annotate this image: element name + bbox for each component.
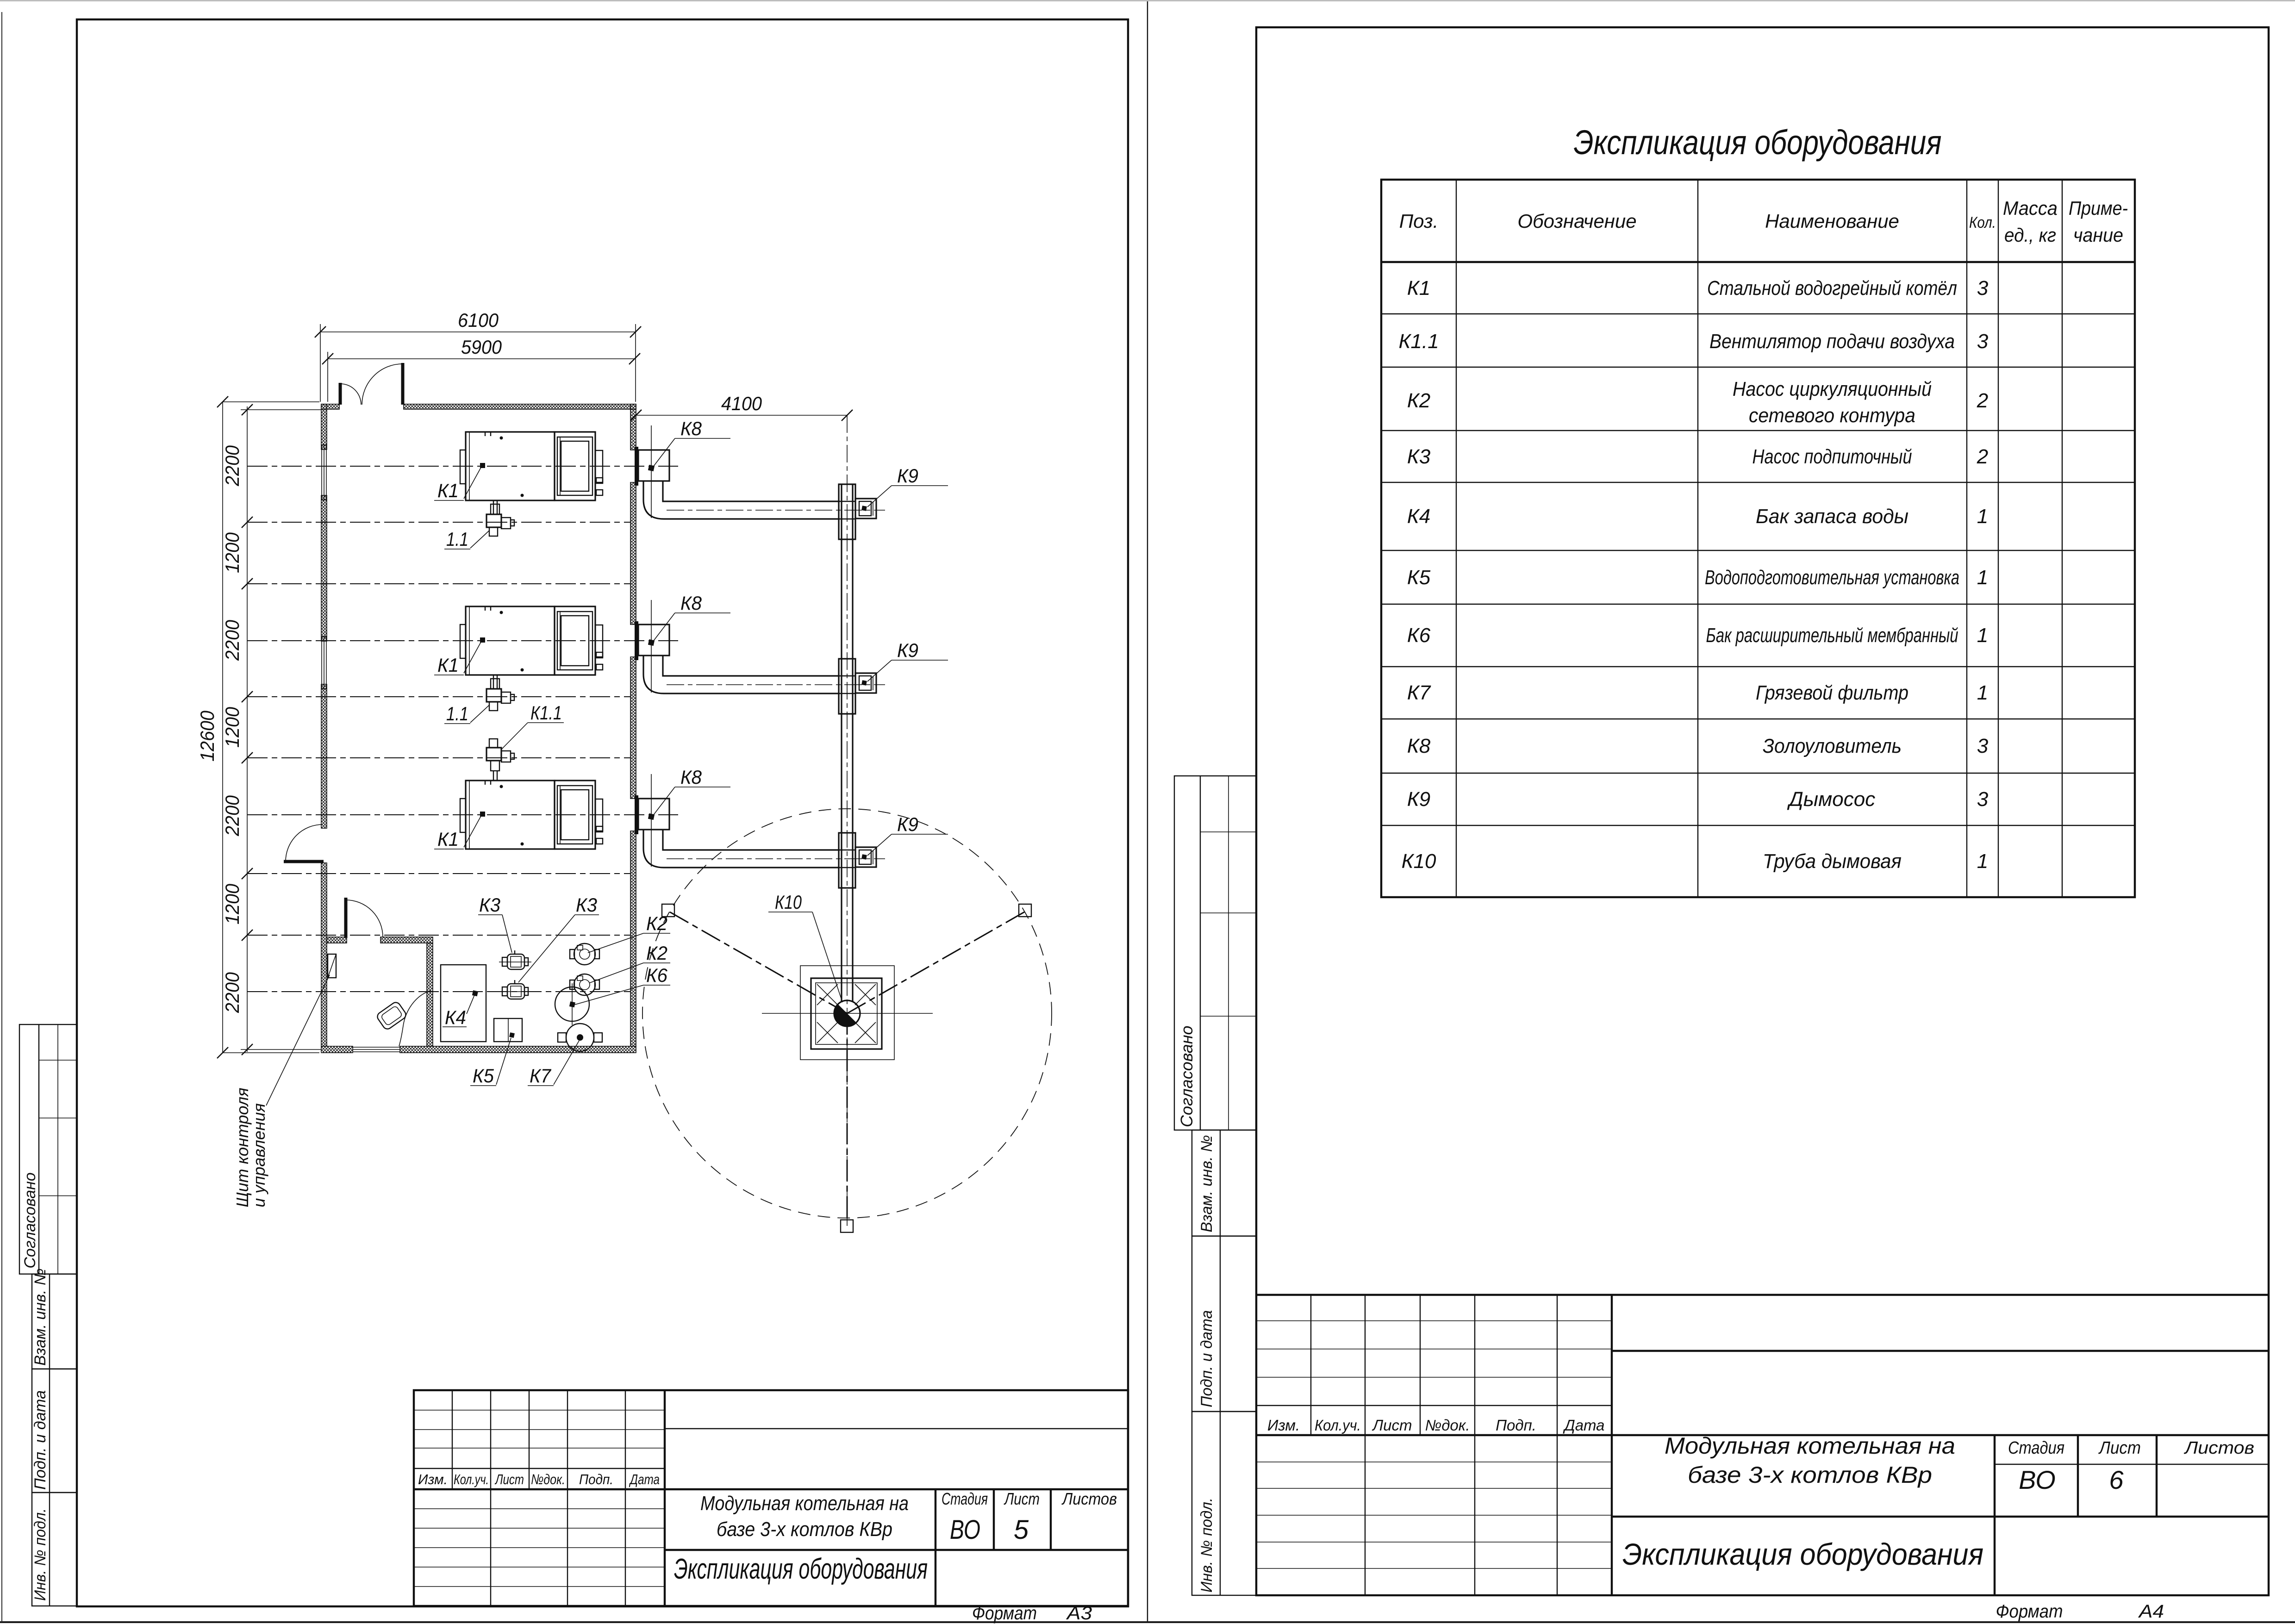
svg-text:Золоуловитель: Золоуловитель [1763, 735, 1902, 757]
svg-text:Насос подпиточный: Насос подпиточный [1752, 445, 1912, 468]
svg-text:А3: А3 [1066, 1603, 1092, 1624]
svg-text:базе 3-х котлов КВр: базе 3-х котлов КВр [1688, 1462, 1932, 1488]
svg-text:Экспликация оборудования: Экспликация оборудования [674, 1553, 928, 1585]
svg-text:ВО: ВО [2019, 1465, 2056, 1494]
svg-text:К1: К1 [437, 480, 459, 501]
svg-text:К9: К9 [1407, 788, 1430, 811]
svg-text:Бак запаса воды: Бак запаса воды [1756, 505, 1908, 528]
svg-text:Лист: Лист [1004, 1489, 1040, 1508]
svg-text:К1.1: К1.1 [530, 702, 562, 724]
svg-text:А4: А4 [2138, 1601, 2164, 1622]
svg-text:2200: 2200 [221, 972, 243, 1013]
svg-text:К4: К4 [445, 1006, 466, 1028]
svg-text:К4: К4 [1407, 505, 1430, 528]
svg-text:Стадия: Стадия [2008, 1438, 2064, 1458]
svg-text:Подп.: Подп. [1496, 1417, 1536, 1434]
svg-text:3: 3 [1977, 788, 1989, 811]
svg-text:К8: К8 [680, 766, 702, 788]
svg-text:Взам. инв. №: Взам. инв. № [1198, 1135, 1216, 1232]
svg-text:Модульная котельная на: Модульная котельная на [700, 1492, 909, 1515]
svg-text:№док.: №док. [1425, 1417, 1470, 1434]
svg-text:К9: К9 [897, 813, 918, 835]
svg-text:5900: 5900 [461, 336, 502, 358]
svg-text:Модульная котельная на: Модульная котельная на [1665, 1433, 1955, 1459]
svg-text:Согласовано: Согласовано [21, 1173, 39, 1268]
svg-text:К9: К9 [897, 639, 918, 661]
svg-text:К1: К1 [1407, 277, 1430, 300]
svg-text:Стальной водогрейный котёл: Стальной водогрейный котёл [1707, 277, 1957, 300]
svg-text:1: 1 [1977, 566, 1988, 589]
svg-text:1.1: 1.1 [446, 703, 468, 725]
svg-text:12600: 12600 [196, 710, 218, 762]
svg-text:2200: 2200 [221, 445, 243, 487]
svg-text:Формат: Формат [972, 1603, 1037, 1624]
svg-text:1.1: 1.1 [446, 528, 468, 550]
svg-text:К7: К7 [530, 1065, 552, 1087]
svg-text:№док.: №док. [531, 1471, 565, 1487]
svg-text:Изм.: Изм. [418, 1471, 448, 1487]
svg-text:чание: чание [2073, 224, 2123, 246]
svg-text:Согласовано: Согласовано [1177, 1025, 1196, 1127]
svg-text:Изм.: Изм. [1267, 1417, 1300, 1434]
svg-text:К3: К3 [576, 894, 597, 916]
svg-text:сетевого контура: сетевого контура [1749, 404, 1915, 427]
svg-text:Лист: Лист [1372, 1417, 1412, 1434]
svg-text:Вентилятор подачи воздуха: Вентилятор подачи воздуха [1709, 330, 1955, 353]
svg-text:2200: 2200 [221, 795, 243, 837]
svg-text:Дата: Дата [1562, 1417, 1604, 1434]
svg-text:Подп. и дата: Подп. и дата [31, 1390, 49, 1490]
svg-text:Инв. № подл.: Инв. № подл. [1198, 1498, 1216, 1593]
svg-text:Стадия: Стадия [942, 1489, 988, 1508]
svg-text:К3: К3 [479, 894, 500, 916]
svg-text:Поз.: Поз. [1399, 210, 1439, 232]
svg-text:К6: К6 [646, 964, 668, 986]
svg-text:3: 3 [1977, 330, 1989, 353]
svg-text:К1: К1 [437, 654, 459, 676]
svg-text:Насос циркуляционный: Насос циркуляционный [1733, 378, 1932, 400]
svg-text:К10: К10 [775, 891, 802, 913]
svg-text:ед., кг: ед., кг [2004, 224, 2056, 246]
svg-text:Кол.уч.: Кол.уч. [1315, 1417, 1361, 1434]
svg-text:1200: 1200 [221, 883, 243, 924]
svg-text:Подп. и дата: Подп. и дата [1198, 1310, 1216, 1407]
svg-text:Дата: Дата [629, 1471, 660, 1487]
svg-text:К8: К8 [680, 592, 702, 614]
svg-text:Формат: Формат [1996, 1601, 2063, 1622]
svg-text:1: 1 [1977, 624, 1988, 647]
svg-text:1: 1 [1977, 850, 1988, 873]
svg-text:К9: К9 [897, 465, 918, 487]
svg-text:К1: К1 [437, 828, 459, 850]
svg-text:К7: К7 [1407, 681, 1431, 704]
svg-text:К8: К8 [1407, 735, 1431, 757]
svg-text:2: 2 [1977, 389, 1988, 412]
svg-text:К10: К10 [1402, 850, 1436, 873]
svg-text:1200: 1200 [221, 532, 243, 573]
svg-text:К2: К2 [646, 942, 667, 964]
svg-text:К3: К3 [1407, 445, 1431, 468]
svg-text:Обозначение: Обозначение [1517, 210, 1636, 232]
svg-text:Листов: Листов [1061, 1489, 1117, 1508]
svg-text:Водоподготовительная установка: Водоподготовительная установка [1705, 566, 1959, 589]
svg-text:Инв. № подл.: Инв. № подл. [31, 1508, 49, 1601]
svg-text:1: 1 [1977, 681, 1988, 704]
svg-text:6: 6 [2109, 1465, 2124, 1494]
svg-text:Кол.уч.: Кол.уч. [454, 1471, 489, 1487]
svg-text:Щит контроля: Щит контроля [233, 1088, 252, 1207]
svg-text:Приме-: Приме- [2069, 197, 2128, 219]
svg-text:5: 5 [1014, 1515, 1029, 1545]
svg-text:Лист: Лист [494, 1471, 524, 1487]
svg-text:3: 3 [1977, 735, 1989, 757]
svg-text:1200: 1200 [221, 706, 243, 748]
svg-text:К5: К5 [1407, 566, 1431, 589]
svg-text:2: 2 [1977, 445, 1988, 468]
svg-text:3: 3 [1977, 277, 1989, 300]
svg-text:К6: К6 [1407, 624, 1431, 647]
svg-text:К2: К2 [646, 912, 667, 934]
svg-text:Наименование: Наименование [1765, 210, 1899, 232]
svg-text:К5: К5 [473, 1065, 494, 1087]
svg-text:Экспликация оборудования: Экспликация оборудования [1622, 1537, 1983, 1571]
svg-text:Дымосос: Дымосос [1787, 788, 1875, 811]
svg-text:Экспликация оборудования: Экспликация оборудования [1574, 123, 1942, 162]
svg-text:6100: 6100 [458, 309, 499, 331]
svg-text:Листов: Листов [2183, 1438, 2254, 1458]
svg-text:Подп.: Подп. [579, 1471, 613, 1487]
svg-text:4100: 4100 [721, 393, 762, 414]
svg-text:ВО: ВО [950, 1515, 980, 1545]
svg-text:Грязевой фильтр: Грязевой фильтр [1756, 681, 1908, 704]
svg-text:Бак расширительный мембранный: Бак расширительный мембранный [1706, 624, 1958, 647]
svg-text:Взам. инв. №: Взам. инв. № [31, 1268, 49, 1366]
svg-text:К2: К2 [1407, 389, 1430, 412]
svg-text:2200: 2200 [221, 619, 243, 661]
svg-text:К1.1: К1.1 [1398, 330, 1439, 353]
svg-text:1: 1 [1977, 505, 1988, 528]
svg-text:Лист: Лист [2098, 1438, 2141, 1458]
svg-text:Масса: Масса [2003, 197, 2058, 219]
svg-text:и управления: и управления [249, 1103, 268, 1207]
svg-text:К8: К8 [680, 418, 702, 439]
svg-text:базе 3-х котлов КВр: базе 3-х котлов КВр [717, 1518, 892, 1541]
svg-text:Труба дымовая: Труба дымовая [1763, 850, 1902, 873]
svg-text:Кол.: Кол. [1969, 214, 1996, 231]
